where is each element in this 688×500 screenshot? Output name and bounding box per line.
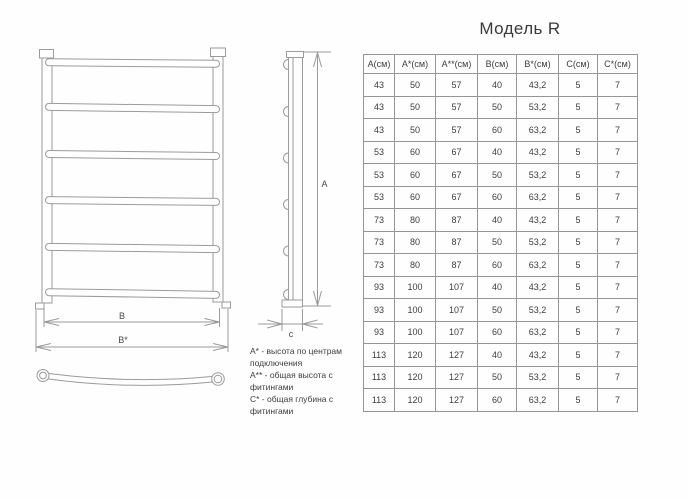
table-cell: 53,2 [517,366,559,389]
side-post-cap [287,52,304,58]
table-row: 4350575053,257 [364,96,638,119]
right-foot [222,302,231,308]
dimension-a: А [303,52,332,306]
table-cell: 5 [559,209,598,232]
table-cell: 43,2 [517,344,559,367]
table-cell: 5 [559,231,598,254]
table-row: 5360675053,257 [364,164,638,187]
table-cell: 73 [364,209,395,232]
table-cell: 5 [559,254,598,277]
table-cell: 7 [598,209,638,232]
table-cell: 63,2 [517,186,559,209]
table-cell: 60 [395,164,436,187]
dimension-b-star: В* [36,309,228,352]
table-cell: 57 [436,74,478,97]
table-cell: 63,2 [517,254,559,277]
table-cell: 107 [436,321,478,344]
table-cell: 50 [395,96,436,119]
table-cell: 7 [598,164,638,187]
table-cell: 40 [478,141,517,164]
legend: А* - высота по центрам подключения А** -… [250,346,368,418]
table-cell: 87 [436,231,478,254]
table-cell: 53,2 [517,231,559,254]
side-foot [282,300,303,307]
table-cell: 63,2 [517,389,559,412]
table-cell: 53,2 [517,164,559,187]
dimension-c-label: с [289,329,294,339]
table-cell: 60 [395,141,436,164]
table-cell: 80 [395,209,436,232]
column-header: В*(см) [517,55,559,74]
table-cell: 7 [598,344,638,367]
table-cell: 93 [364,299,395,322]
table-cell: 50 [478,366,517,389]
table-cell: 127 [436,389,478,412]
rung-end [284,107,289,117]
table-cell: 43 [364,74,395,97]
right-post-cap [211,48,226,57]
table-row: 931001075053,257 [364,299,638,322]
table-cell: 7 [598,321,638,344]
table-cell: 43,2 [517,74,559,97]
table-cell: 100 [395,276,436,299]
table-cell: 5 [559,344,598,367]
table-row: 4350574043,257 [364,74,638,97]
legend-item: С* - общая глубина с фитингами [250,394,368,417]
rung [45,289,219,299]
column-header: А(см) [364,55,395,74]
table-cell: 127 [436,366,478,389]
table-cell: 5 [559,389,598,412]
table-cell: 67 [436,164,478,187]
table-cell: 5 [559,321,598,344]
table-cell: 5 [559,276,598,299]
table-cell: 53,2 [517,299,559,322]
table-cell: 53 [364,164,395,187]
side-post [289,58,303,301]
table-cell: 7 [598,96,638,119]
table-cell: 113 [364,389,395,412]
table-cell: 60 [478,186,517,209]
table-row: 5360674043,257 [364,141,638,164]
table-cell: 7 [598,299,638,322]
table-row: 7380874043,257 [364,209,638,232]
table-cell: 43,2 [517,276,559,299]
column-header: В(см) [478,55,517,74]
left-foot [36,303,45,309]
left-post [42,58,52,303]
column-header: А*(см) [395,55,436,74]
table-cell: 57 [436,119,478,142]
table-cell: 7 [598,254,638,277]
dimension-b: В [44,308,220,327]
table-cell: 5 [559,164,598,187]
table-cell: 57 [436,96,478,119]
dimension-b-label: В [119,311,125,321]
dimension-c: с [258,309,323,339]
table-cell: 120 [395,344,436,367]
post-end-circle [214,375,222,383]
table-cell: 40 [478,344,517,367]
table-cell: 53,2 [517,96,559,119]
table-cell: 7 [598,276,638,299]
table-cell: 60 [478,119,517,142]
spec-table: А(см)А*(см)А**(см)В(см)В*(см)С(см)С*(см)… [363,54,638,412]
table-cell: 60 [395,186,436,209]
table-cell: 107 [436,276,478,299]
table-cell: 100 [395,299,436,322]
table-cell: 43 [364,119,395,142]
table-row: 1131201274043,257 [364,344,638,367]
post-end-circle [40,372,47,379]
table-cell: 127 [436,344,478,367]
dimension-a-label: А [322,179,328,189]
column-header: С*(см) [598,55,638,74]
rung-end [284,200,289,210]
table-cell: 5 [559,299,598,322]
left-post-cap [40,50,54,59]
table-row: 931001076063,257 [364,321,638,344]
table-cell: 50 [478,231,517,254]
table-row: 7380876063,257 [364,254,638,277]
table-cell: 53 [364,186,395,209]
table-cell: 63,2 [517,321,559,344]
column-header: С(см) [559,55,598,74]
table-row: 7380875053,257 [364,231,638,254]
table-row: 1131201275053,257 [364,366,638,389]
table-cell: 43,2 [517,209,559,232]
legend-item: А** - общая высота с фитингами [250,370,368,393]
table-cell: 73 [364,231,395,254]
table-cell: 80 [395,254,436,277]
table-cell: 53 [364,141,395,164]
table-cell: 80 [395,231,436,254]
rung-end [284,153,289,163]
table-cell: 7 [598,141,638,164]
bottom-view-drawing [37,370,224,386]
table-cell: 120 [395,366,436,389]
table-cell: 50 [395,74,436,97]
post-end-circle [212,373,225,386]
side-view-drawing [282,52,304,308]
table-cell: 40 [478,276,517,299]
table-cell: 5 [559,119,598,142]
rung [45,243,219,252]
table-cell: 50 [395,119,436,142]
table-cell: 43,2 [517,141,559,164]
table-cell: 40 [478,74,517,97]
table-header-row: А(см)А*(см)А**(см)В(см)В*(см)С(см)С*(см) [364,55,638,74]
spec-sheet: В В* [0,0,688,500]
table-cell: 107 [436,299,478,322]
table-cell: 93 [364,321,395,344]
table-cell: 60 [478,389,517,412]
table-cell: 7 [598,366,638,389]
rung [45,59,219,68]
front-view-drawing [36,48,231,309]
table-cell: 5 [559,141,598,164]
table-cell: 43 [364,96,395,119]
table-cell: 73 [364,254,395,277]
table-cell: 60 [478,321,517,344]
column-header: А**(см) [436,55,478,74]
table-cell: 5 [559,74,598,97]
table-cell: 50 [478,299,517,322]
rung-end [284,60,289,70]
table-cell: 7 [598,231,638,254]
table-cell: 63,2 [517,119,559,142]
table-cell: 113 [364,344,395,367]
table-cell: 7 [598,74,638,97]
table-cell: 5 [559,96,598,119]
table-cell: 113 [364,366,395,389]
rung [45,197,219,206]
table-cell: 5 [559,366,598,389]
page-title: Модель R [438,19,602,39]
rung [45,103,219,112]
rung-end [284,246,289,256]
post-end-circle [37,370,49,382]
table-cell: 5 [559,186,598,209]
table-row: 931001074043,257 [364,276,638,299]
table-cell: 100 [395,321,436,344]
table-cell: 87 [436,209,478,232]
table-cell: 87 [436,254,478,277]
table-cell: 50 [478,164,517,187]
table-row: 4350576063,257 [364,119,638,142]
table-cell: 7 [598,119,638,142]
table-cell: 120 [395,389,436,412]
rung [45,150,219,159]
table-cell: 50 [478,96,517,119]
table-cell: 7 [598,389,638,412]
table-cell: 67 [436,141,478,164]
right-post [213,57,223,303]
rung-end [284,290,289,300]
table-cell: 67 [436,186,478,209]
dimension-b-star-label: В* [118,335,128,345]
table-cell: 40 [478,209,517,232]
table-body: 4350574043,2574350575053,2574350576063,2… [364,74,638,412]
table-row: 5360676063,257 [364,186,638,209]
curved-rail [49,374,212,380]
legend-item: А* - высота по центрам подключения [250,346,368,369]
table-cell: 93 [364,276,395,299]
table-row: 1131201276063,257 [364,389,638,412]
table-cell: 60 [478,254,517,277]
table-cell: 7 [598,186,638,209]
